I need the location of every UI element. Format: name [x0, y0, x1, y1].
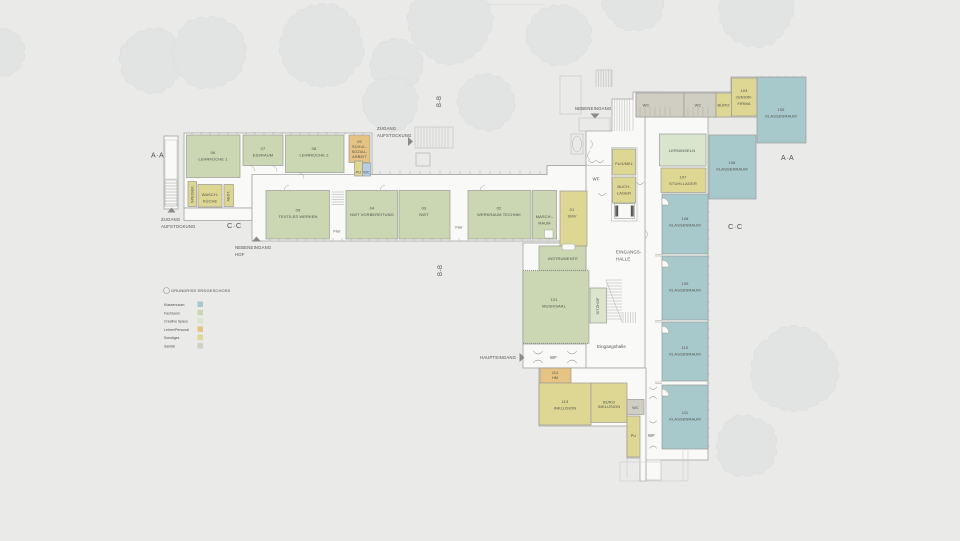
svg-text:08: 08: [312, 146, 317, 151]
svg-text:WC: WC: [643, 103, 650, 108]
svg-text:05: 05: [296, 208, 301, 213]
svg-text:109: 109: [682, 281, 690, 286]
svg-text:NWT VORBEREITUNG: NWT VORBEREITUNG: [350, 212, 394, 217]
svg-text:SPEISEK.: SPEISEK.: [191, 185, 195, 203]
svg-text:Creative Space: Creative Space: [164, 320, 188, 324]
svg-text:ESSRAUM: ESSRAUM: [253, 153, 273, 158]
svg-text:C·C: C·C: [728, 222, 743, 231]
svg-text:WC: WC: [695, 103, 702, 108]
svg-text:AUFSTOCKUNG: AUFSTOCKUNG: [161, 224, 196, 229]
svg-text:110: 110: [682, 345, 689, 350]
svg-text:KÜCHE: KÜCHE: [203, 199, 218, 204]
svg-text:B-B: B-B: [438, 264, 444, 276]
svg-text:NEBENEINGANG: NEBENEINGANG: [235, 245, 272, 250]
svg-text:Klassenraum: Klassenraum: [164, 303, 185, 307]
svg-text:ARBEIT: ARBEIT: [352, 154, 367, 159]
svg-text:HAUPTEINGANG: HAUPTEINGANG: [480, 355, 517, 360]
svg-text:LEHRKÜCHE 2: LEHRKÜCHE 2: [299, 153, 329, 158]
svg-text:WF: WF: [593, 177, 600, 182]
svg-text:04: 04: [370, 206, 375, 211]
svg-text:MUSIKSAAL: MUSIKSAAL: [542, 304, 566, 309]
svg-text:C·C: C·C: [227, 221, 242, 230]
svg-text:WF: WF: [648, 433, 655, 438]
svg-text:SITZHOF: SITZHOF: [596, 297, 600, 315]
svg-text:LEHRKÜCHE 1: LEHRKÜCHE 1: [198, 157, 228, 162]
svg-text:INKLUSION: INKLUSION: [554, 406, 576, 411]
svg-text:104: 104: [741, 88, 749, 93]
svg-text:111: 111: [682, 410, 689, 415]
svg-text:105: 105: [778, 107, 786, 112]
svg-text:PU/UMKL: PU/UMKL: [615, 161, 634, 166]
svg-text:Lehrer/Personal: Lehrer/Personal: [164, 328, 189, 332]
svg-text:FIRMA: FIRMA: [738, 101, 751, 106]
svg-text:Flur: Flur: [333, 229, 341, 234]
svg-text:KLASSENRAUM: KLASSENRAUM: [669, 223, 700, 228]
svg-text:TEXTILES WERKEN: TEXTILES WERKEN: [278, 214, 317, 219]
svg-text:Eingangshalle: Eingangshalle: [597, 344, 626, 349]
svg-text:SMV: SMV: [568, 214, 577, 219]
svg-text:07: 07: [261, 146, 266, 151]
svg-text:108: 108: [682, 216, 690, 221]
svg-text:106: 106: [729, 160, 737, 165]
svg-text:KLASSENRAUM: KLASSENRAUM: [669, 288, 700, 293]
svg-text:INSTRUMENTE: INSTRUMENTE: [548, 256, 578, 261]
svg-text:Flur: Flur: [455, 225, 463, 230]
svg-text:ZUGANG: ZUGANG: [377, 126, 397, 131]
svg-text:STUHLLAGER: STUHLLAGER: [669, 181, 697, 186]
svg-text:AUFSTOCKUNG: AUFSTOCKUNG: [377, 133, 412, 138]
svg-text:02: 02: [497, 206, 502, 211]
svg-text:PU: PU: [356, 171, 362, 175]
svg-text:ABST.: ABST.: [227, 190, 231, 201]
svg-text:KLASSENRAUM: KLASSENRAUM: [765, 114, 796, 119]
svg-text:HALLE: HALLE: [616, 257, 630, 262]
svg-text:GRUNDRISS ERDGESCHOSS: GRUNDRISS ERDGESCHOSS: [171, 288, 231, 293]
svg-text:LERNINSELN: LERNINSELN: [669, 148, 695, 153]
svg-text:WC: WC: [632, 406, 639, 410]
svg-text:BÜRO: BÜRO: [718, 103, 730, 108]
svg-text:101: 101: [551, 297, 559, 302]
svg-text:NWT: NWT: [419, 212, 429, 217]
svg-text:113: 113: [562, 399, 569, 404]
svg-text:KLASSENRAUM: KLASSENRAUM: [669, 417, 700, 422]
svg-text:06: 06: [211, 150, 216, 155]
svg-text:A·A: A·A: [781, 155, 794, 162]
svg-text:HOF: HOF: [235, 252, 245, 257]
svg-text:NEBENEINGANG: NEBENEINGANG: [575, 106, 612, 111]
svg-text:Sanitär: Sanitär: [164, 345, 176, 349]
svg-text:107: 107: [680, 175, 688, 180]
svg-text:RAUM: RAUM: [538, 221, 550, 226]
svg-text:Fachraum: Fachraum: [164, 311, 180, 315]
svg-text:WERKRAUM TECHNIK: WERKRAUM TECHNIK: [477, 212, 521, 217]
svg-text:03: 03: [422, 206, 427, 211]
svg-text:BUCH-: BUCH-: [617, 184, 631, 189]
svg-text:ZUGANG: ZUGANG: [161, 217, 181, 222]
svg-text:KLASSENRAUM: KLASSENRAUM: [669, 352, 700, 357]
svg-text:A·A: A·A: [151, 153, 164, 160]
svg-text:WF: WF: [550, 355, 557, 360]
svg-text:EINGANGS-: EINGANGS-: [616, 250, 642, 255]
svg-text:WC: WC: [363, 171, 370, 175]
svg-text:PU: PU: [631, 434, 637, 438]
svg-text:01: 01: [570, 207, 575, 212]
svg-text:HM: HM: [552, 376, 558, 380]
svg-text:KLASSENRAUM: KLASSENRAUM: [716, 167, 747, 172]
svg-text:JUNIOR-: JUNIOR-: [736, 95, 753, 100]
svg-text:LAGER: LAGER: [617, 191, 631, 196]
svg-text:Sonstiges: Sonstiges: [164, 336, 180, 340]
svg-text:INKLUSION: INKLUSION: [598, 404, 620, 409]
svg-text:114: 114: [552, 371, 558, 375]
svg-text:B-B: B-B: [437, 95, 443, 107]
svg-text:MASCH.-: MASCH.-: [536, 214, 554, 219]
svg-text:WASCH-: WASCH-: [202, 192, 219, 197]
